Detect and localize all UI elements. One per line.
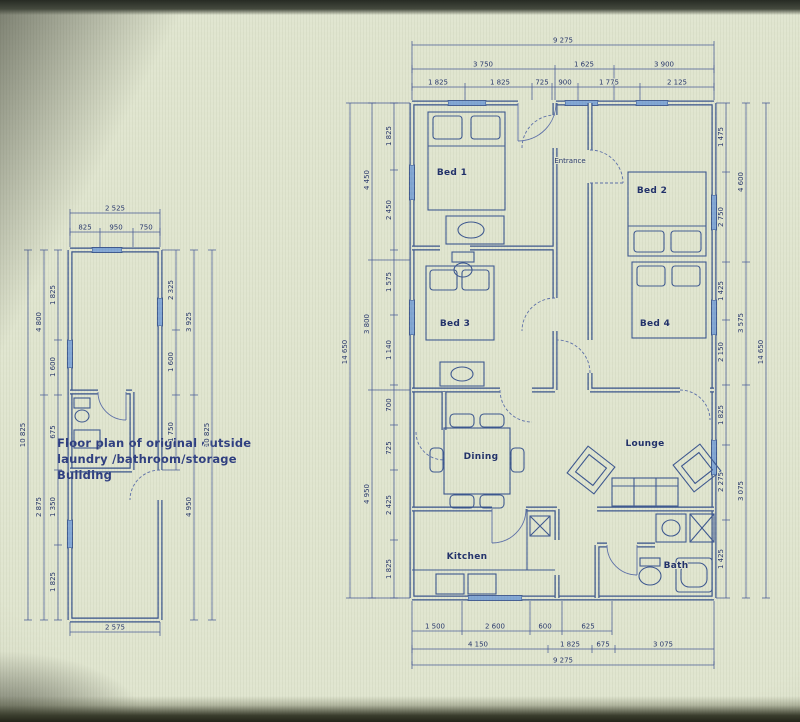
bed3-door-arc xyxy=(522,298,555,331)
room-label-bath: Bath xyxy=(664,561,689,571)
room-label-kitchen: Kitchen xyxy=(447,552,488,562)
dim-label: 14 650 xyxy=(757,340,765,365)
dim-label: 2 600 xyxy=(485,623,505,631)
dim-label: 750 xyxy=(139,224,152,232)
small-outer-walls xyxy=(70,250,160,620)
dim-label: 4 600 xyxy=(737,172,745,192)
dim-label: 4 800 xyxy=(35,312,43,332)
room-label-lounge: Lounge xyxy=(625,439,664,449)
bed3-fixture xyxy=(440,362,484,386)
dim-label: 725 xyxy=(535,79,548,87)
dim-label: 1 600 xyxy=(49,357,57,377)
dim-label: 1 475 xyxy=(717,127,725,147)
dim-label: 1 625 xyxy=(574,61,594,69)
dim-label: 1 825 xyxy=(560,641,580,649)
small-dims-top: 2 525 825 950 750 xyxy=(70,205,160,248)
dim-label: 1 425 xyxy=(717,281,725,301)
dim-label: 725 xyxy=(385,441,393,454)
laundry-door-arc xyxy=(98,392,126,420)
dim-label: 675 xyxy=(596,641,609,649)
dim-label: 1 825 xyxy=(490,79,510,87)
dim-label: 3 075 xyxy=(737,481,745,501)
entrance-door-arc xyxy=(518,103,556,141)
dim-label: 1 350 xyxy=(49,497,57,517)
dim-label: 1 425 xyxy=(717,549,725,569)
small-plan: Floor plan of original outside laundry /… xyxy=(19,205,251,637)
main-plan: Bed 1 Bed 2 Bed 3 Bed 4 Entrance Dining … xyxy=(341,37,770,670)
lounge-armchair-left xyxy=(567,446,615,494)
dim-label: 1 575 xyxy=(385,272,393,292)
caption-line-1: Floor plan of original outside xyxy=(57,436,251,450)
floorplan-photo: Bed 1 Bed 2 Bed 3 Bed 4 Entrance Dining … xyxy=(0,0,800,722)
dim-label: 2 325 xyxy=(167,280,175,300)
room-label-bed4: Bed 4 xyxy=(640,319,670,329)
bed4-door-arc xyxy=(557,340,590,373)
dim-label: 2 575 xyxy=(105,624,125,632)
dim-label: 825 xyxy=(78,224,91,232)
room-label-bed3: Bed 3 xyxy=(440,319,470,329)
room-label-dining: Dining xyxy=(464,452,499,462)
main-dims-right: 1 475 2 750 1 425 2 150 1 825 2 275 1 42… xyxy=(716,103,770,598)
dim-label: 2 125 xyxy=(667,79,687,87)
main-dims-top: 9 275 3 750 1 625 3 900 1 825 1 825 725 … xyxy=(412,37,714,101)
storage-door-arc xyxy=(130,470,160,500)
room-label-bed2: Bed 2 xyxy=(637,186,667,196)
lounge-sofa xyxy=(612,478,678,506)
dim-label: 2 750 xyxy=(717,207,725,227)
dim-label: 2 875 xyxy=(35,497,43,517)
dim-label: 4 950 xyxy=(363,484,371,504)
bath-fixtures xyxy=(639,514,714,592)
small-dims-left: 1 825 1 600 675 1 350 1 825 4 800 2 875 … xyxy=(19,250,62,620)
room-label-bed1: Bed 1 xyxy=(437,168,467,178)
room-label-entrance: Entrance xyxy=(554,157,585,165)
dim-label: 3 900 xyxy=(654,61,674,69)
photo-top-edge xyxy=(0,0,800,15)
dim-label: 900 xyxy=(558,79,571,87)
bed1-bed xyxy=(428,112,505,210)
dim-label: 10 825 xyxy=(19,423,27,448)
bed2-door-arc xyxy=(590,150,623,183)
bed2-bed xyxy=(628,172,706,256)
dim-label: 700 xyxy=(385,398,393,411)
dim-label: 2 150 xyxy=(717,342,725,362)
small-plan-caption: Floor plan of original outside laundry /… xyxy=(57,436,251,482)
caption-line-2: laundry /bathroom/storage xyxy=(57,452,237,466)
dim-label: 1 775 xyxy=(599,79,619,87)
main-dims-left: 14 650 4 450 3 800 4 950 1 825 2 450 1 5… xyxy=(341,103,410,598)
dim-label: 1 825 xyxy=(385,126,393,146)
dim-label: 3 750 xyxy=(473,61,493,69)
dim-label: 3 925 xyxy=(185,312,193,332)
dim-label: 10 825 xyxy=(203,423,211,448)
dim-label: 675 xyxy=(49,425,57,438)
door-gap xyxy=(551,298,559,331)
living-door-arc xyxy=(500,390,532,422)
main-dims-bottom: 1 500 2 600 600 625 4 150 1 825 675 3 07… xyxy=(412,601,714,669)
dim-label: 2 450 xyxy=(385,200,393,220)
furniture xyxy=(412,112,721,594)
dim-label: 1 825 xyxy=(717,405,725,425)
dim-label: 4 950 xyxy=(185,497,193,517)
dim-label: 1 825 xyxy=(49,285,57,305)
dim-label: 14 650 xyxy=(341,340,349,365)
dim-label: 600 xyxy=(538,623,551,631)
dim-label: 1 500 xyxy=(425,623,445,631)
dim-label: 950 xyxy=(109,224,122,232)
small-dims-right: 2 325 1 600 1 750 3 925 4 950 10 825 xyxy=(162,250,216,620)
dim-label: 4 150 xyxy=(468,641,488,649)
floorplan-drawing: Bed 1 Bed 2 Bed 3 Bed 4 Entrance Dining … xyxy=(0,0,800,722)
dim-label: 3 800 xyxy=(363,314,371,334)
dim-label: 1 140 xyxy=(385,340,393,360)
dim-label: 9 275 xyxy=(553,37,573,45)
dim-label: 2 425 xyxy=(385,495,393,515)
dim-label: 1 600 xyxy=(167,352,175,372)
dim-label: 3 075 xyxy=(653,641,673,649)
dim-label: 2 525 xyxy=(105,205,125,213)
dim-label: 1 750 xyxy=(167,422,175,442)
dim-label: 2 275 xyxy=(717,472,725,492)
photo-bottom-edge xyxy=(0,696,800,722)
caption-line-3: Buliding xyxy=(57,468,112,482)
dim-label: 9 275 xyxy=(553,657,573,665)
dim-label: 4 450 xyxy=(363,170,371,190)
bed1-door-arc xyxy=(522,115,555,148)
lounge-door-arc xyxy=(680,390,710,420)
dim-label: 1 825 xyxy=(49,572,57,592)
dim-label: 3 575 xyxy=(737,313,745,333)
small-dims-bottom: 2 575 xyxy=(70,622,160,636)
dim-label: 1 825 xyxy=(385,559,393,579)
bath-door-arc xyxy=(607,545,637,575)
dim-label: 1 825 xyxy=(428,79,448,87)
dim-label: 625 xyxy=(581,623,594,631)
kitchen-door-arc xyxy=(492,509,526,543)
